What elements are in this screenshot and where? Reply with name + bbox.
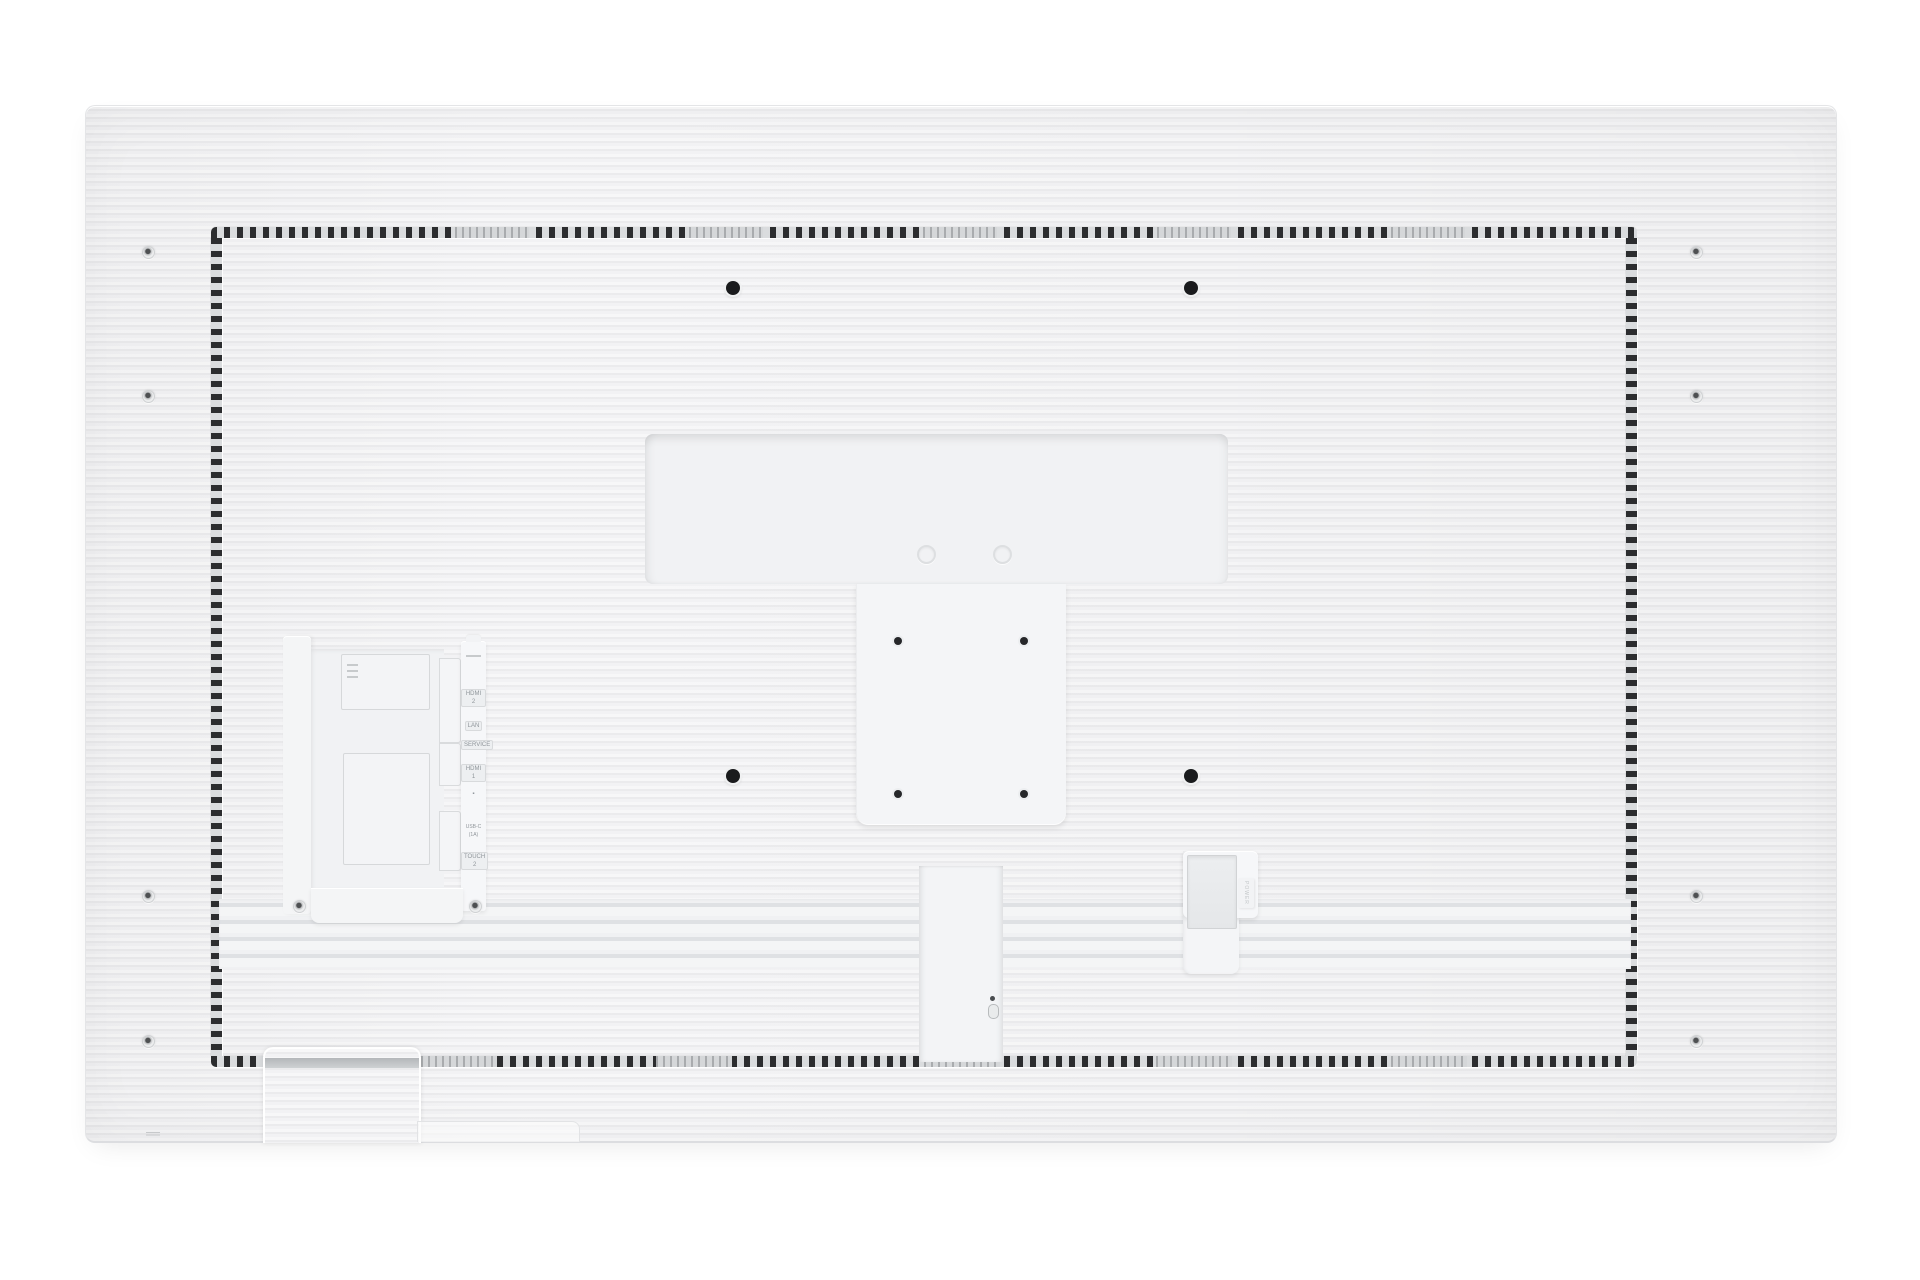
port-label-touch2: TOUCH 2 [461, 852, 486, 870]
display-rear-panel: HDMI 2 LAN SERVICE HDMI 1 ▪ USB-C (1A) T… [85, 105, 1837, 1143]
bottom-vent-slot [265, 1058, 419, 1068]
port-label-service: SERVICE [461, 740, 486, 750]
recess-indent-left [917, 545, 936, 564]
vent-grille-segment [689, 227, 763, 238]
vent-grille-segment [421, 1056, 497, 1067]
lock-slot [988, 1004, 999, 1019]
vesa-hole-top-right [1020, 637, 1028, 645]
connector-cutout-1 [439, 658, 461, 743]
info-sticker-bottom [343, 753, 430, 865]
panel-screw [1690, 890, 1703, 903]
connector-bracket [283, 636, 311, 914]
audio-port-icon: ▪ [461, 790, 486, 798]
panel-screw [142, 390, 155, 403]
strip-tab [466, 635, 481, 642]
vesa-recess-area [645, 434, 1228, 584]
lock-pin-hole [990, 996, 995, 1001]
bottom-step-outline [417, 1121, 580, 1142]
bottom-edge-mark [146, 1132, 160, 1137]
panel-screw [1690, 1035, 1703, 1048]
vent-grille-segment [1156, 1056, 1232, 1067]
module-screw-left [293, 900, 306, 913]
product-photo-stage: HDMI 2 LAN SERVICE HDMI 1 ▪ USB-C (1A) T… [0, 0, 1920, 1280]
bottom-mount-tab [263, 1047, 421, 1143]
mount-hole-top-right [1184, 281, 1198, 295]
vent-grille-segment [1157, 227, 1231, 238]
mount-hole-top-left [726, 281, 740, 295]
vesa-hole-bottom-right [1020, 790, 1028, 798]
mount-hole-bottom-left [726, 769, 740, 783]
vent-grille-segment [1391, 1056, 1467, 1067]
power-switch-window [1187, 855, 1237, 929]
port-label-hdmi1: HDMI 1 [461, 764, 486, 782]
panel-screw [142, 1035, 155, 1048]
vent-grille-segment [923, 227, 997, 238]
info-sticker-top [341, 654, 430, 710]
power-embossed-label: POWER [1243, 881, 1249, 905]
vesa-hole-bottom-left [894, 790, 902, 798]
connector-cutout-2 [439, 743, 461, 786]
panel-screw [142, 890, 155, 903]
port-label-lan: LAN [461, 721, 486, 731]
panel-screw [142, 246, 155, 259]
panel-screw [1690, 390, 1703, 403]
port-label-usbc: USB-C (1A) [461, 823, 486, 839]
vesa-mount-plate [856, 584, 1066, 825]
port-label-hdmi2: HDMI 2 [461, 689, 486, 707]
connector-module-base [311, 888, 463, 923]
vent-grille-segment [1391, 227, 1465, 238]
power-switch-tab: POWER [1238, 878, 1254, 908]
connector-cutout-3 [439, 811, 461, 871]
mount-hole-bottom-right [1184, 769, 1198, 783]
port-label-strip: HDMI 2 LAN SERVICE HDMI 1 ▪ USB-C (1A) T… [461, 641, 486, 911]
panel-screw [1690, 246, 1703, 259]
module-screw-right [469, 900, 482, 913]
recess-indent-right [993, 545, 1012, 564]
center-cable-column [919, 866, 1003, 1062]
vent-grille-segment [656, 1056, 732, 1067]
vesa-hole-top-left [894, 637, 902, 645]
vent-grille-segment [455, 227, 529, 238]
vent-border-top [211, 227, 1637, 238]
